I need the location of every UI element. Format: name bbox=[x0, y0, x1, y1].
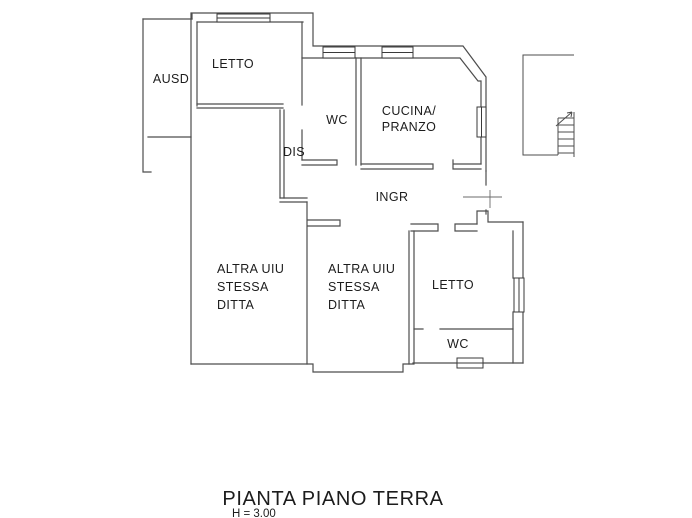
room-label-altra-left-line3: DITTA bbox=[217, 298, 254, 312]
wall-vestibule bbox=[477, 211, 523, 224]
wall-kitchen-top-inner bbox=[302, 58, 481, 107]
ingr-walls bbox=[308, 220, 477, 231]
staircase-icon bbox=[523, 55, 574, 157]
wall-lettob-left-double bbox=[409, 231, 414, 364]
stair-treads bbox=[558, 118, 574, 153]
wall-dis-bottom-double bbox=[280, 198, 307, 202]
room-label-letto-top: LETTO bbox=[212, 57, 254, 71]
room-label-cucina-line1: CUCINA/ bbox=[382, 104, 436, 118]
room-labels: AUSD LETTO WC CUCINA/ PRANZO DIS INGR AL… bbox=[153, 57, 474, 351]
wall-ingr-bottom-left bbox=[308, 220, 340, 226]
floor-plan-drawing: AUSD LETTO WC CUCINA/ PRANZO DIS INGR AL… bbox=[0, 0, 692, 518]
plan-title: PIANTA PIANO TERRA bbox=[222, 488, 443, 510]
room-label-altra-mid-line1: ALTRA UIU bbox=[328, 262, 395, 276]
wall-wc-cucina-divider bbox=[356, 58, 361, 165]
wall-wc-bottom bbox=[302, 160, 337, 165]
stair-outline bbox=[523, 55, 574, 155]
room-label-wc-top: WC bbox=[326, 113, 348, 127]
wall-ingr-bottom-mid bbox=[411, 224, 438, 231]
room-label-wc-bottom: WC bbox=[447, 337, 469, 351]
plan-height-note: H = 3.00 bbox=[232, 508, 276, 518]
room-label-altra-mid-line2: STESSA bbox=[328, 280, 380, 294]
wall-cucina-bottom-right bbox=[453, 160, 481, 169]
room-label-altra-mid-line3: DITTA bbox=[328, 298, 365, 312]
room-label-dis: DIS bbox=[283, 145, 305, 159]
title-block: PIANTA PIANO TERRA H = 3.00 bbox=[222, 488, 443, 518]
room-label-altra-left-line2: STESSA bbox=[217, 280, 269, 294]
wall-bottom-outer bbox=[191, 364, 413, 372]
wall-cucina-bottom-left bbox=[361, 164, 433, 169]
room-label-altra-left-line1: ALTRA UIU bbox=[217, 262, 284, 276]
wall-letto-bottom-double bbox=[197, 104, 283, 108]
wall-ingr-bottom-right bbox=[455, 224, 477, 231]
room-label-letto-bottom: LETTO bbox=[432, 278, 474, 292]
wall-top-outer bbox=[192, 13, 486, 171]
entry-door-icon bbox=[463, 190, 502, 208]
floor-plan-page: AUSD LETTO WC CUCINA/ PRANZO DIS INGR AL… bbox=[0, 0, 692, 518]
room-label-ingr: INGR bbox=[376, 190, 409, 204]
room-label-ausd: AUSD bbox=[153, 72, 189, 86]
ausd-walls bbox=[143, 19, 192, 172]
room-label-cucina-line2: PRANZO bbox=[382, 120, 437, 134]
wall-ausd-left bbox=[143, 19, 151, 172]
